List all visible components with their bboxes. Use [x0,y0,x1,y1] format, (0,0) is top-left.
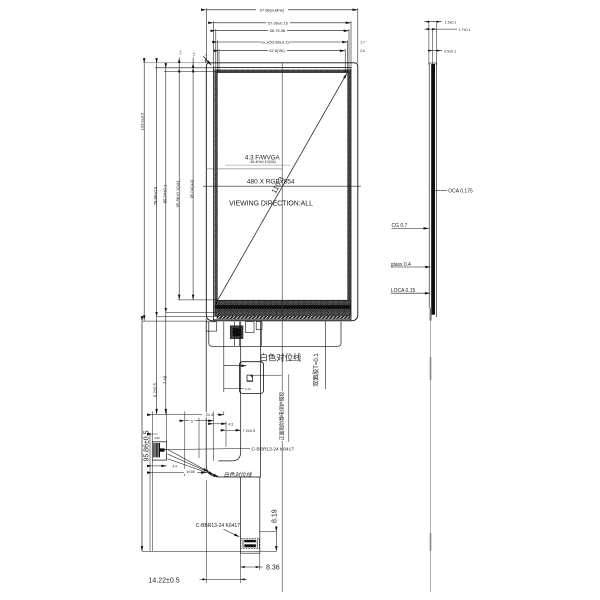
svg-text:45.40±0.10(VA): 45.40±0.10(VA) [250,160,276,164]
svg-text:56.75.38: 56.75.38 [270,28,286,33]
svg-text:xx.x(53.86±0.1): xx.x(53.86±0.1) [261,40,289,45]
svg-text:95.04±0.1: 95.04±0.1 [162,184,167,203]
svg-text:79.86±0.5: 79.86±0.5 [153,186,158,205]
svg-text:双面胶T=0.1: 双面胶T=0.1 [312,353,320,387]
svg-text:OCA 0.175: OCA 0.175 [448,188,473,194]
svg-text:7.2±0.5: 7.2±0.5 [243,429,256,433]
svg-text:7.48: 7.48 [162,375,167,384]
svg-text:8.19: 8.19 [271,509,278,523]
svg-text:4.3: 4.3 [228,422,233,426]
svg-text:2.6: 2.6 [360,49,365,53]
svg-text:正面贴防静电保护膜胶: 正面贴防静电保护膜胶 [279,392,286,441]
svg-text:1.7±0.1: 1.7±0.1 [459,28,471,32]
svg-text:4.4: 4.4 [173,464,178,468]
svg-text:0.5±0.1: 0.5±0.1 [444,49,456,53]
svg-text:1.5: 1.5 [192,52,196,56]
svg-text:C-BBR13-24 K6417: C-BBR13-24 K6417 [196,523,240,529]
svg-text:95.86±0.5: 95.86±0.5 [143,430,150,461]
svg-text:103.9±0.5: 103.9±0.5 [140,112,145,131]
svg-text:C-BBR13-24 K6417: C-BBR13-24 K6417 [252,446,295,452]
svg-text:白色对位线: 白色对位线 [224,472,253,479]
svg-text:95.86±0.1(VA): 95.86±0.1(VA) [176,180,181,207]
svg-text:8.36: 8.36 [266,565,280,572]
svg-text:1.7: 1.7 [360,40,365,44]
svg-text:0.98: 0.98 [154,436,160,440]
svg-text:3.4: 3.4 [178,50,182,54]
svg-text:67.86(outline): 67.86(outline) [260,7,285,12]
svg-text:21.4: 21.4 [206,412,215,417]
svg-text:1.5±0.1: 1.5±0.1 [445,20,457,24]
svg-text:52.5(VA): 52.5(VA) [269,48,285,53]
svg-text:95.04(AA): 95.04(AA) [190,179,195,198]
svg-text:6.2±0.5: 6.2±0.5 [153,382,158,397]
svg-text:14.22±0.5: 14.22±0.5 [149,577,180,584]
svg-text:480 X RGB×854: 480 X RGB×854 [247,178,295,185]
svg-text:0.1C: 0.1C [245,387,251,391]
svg-text:VIEWING DIRECTION:ALL: VIEWING DIRECTION:ALL [229,200,313,207]
svg-text:57.06±0.15: 57.06±0.15 [268,20,289,25]
svg-text:白色对位线: 白色对位线 [260,352,302,362]
svg-text:19.88: 19.88 [187,470,195,474]
